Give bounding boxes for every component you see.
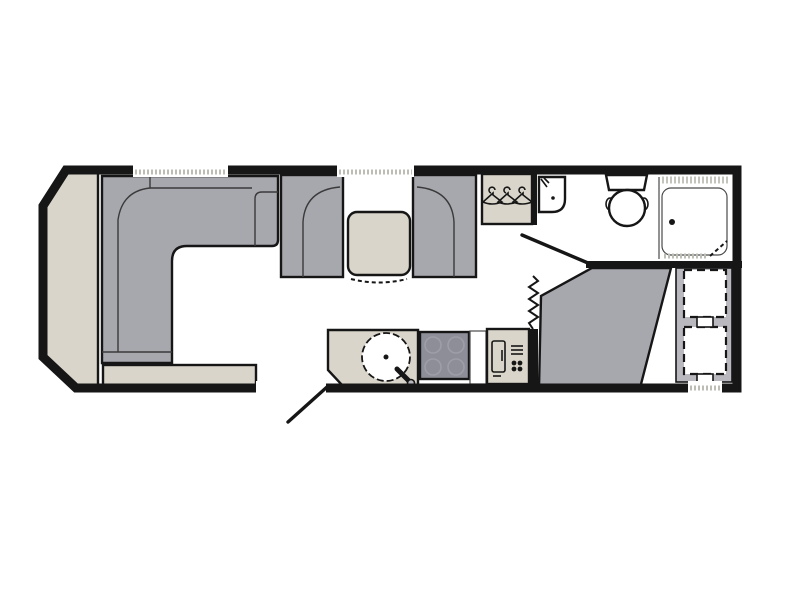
sink-drain [384, 355, 389, 360]
basin-drain [551, 196, 555, 200]
wardrobe [482, 174, 532, 224]
wardrobe-body [482, 174, 532, 224]
floorplan-canvas [0, 0, 800, 600]
bunk-lower [684, 327, 726, 374]
kitchen [328, 329, 538, 387]
dinette-seat-right [413, 175, 476, 277]
kitchen-end-wall [529, 329, 538, 386]
dinette-seat-left [281, 175, 343, 277]
bunk-step [697, 317, 713, 327]
toilet-cistern [606, 175, 647, 190]
shower-drain [669, 219, 675, 225]
toilet-bowl [609, 190, 645, 226]
dinette-table [348, 212, 410, 275]
partition-wall [531, 172, 537, 225]
bunk-step [697, 374, 713, 382]
window-bedroom [688, 381, 722, 396]
front-chest [45, 172, 98, 387]
bunk-area [676, 268, 732, 382]
entrance-doorway [256, 381, 326, 396]
caravan-floorplan [0, 0, 800, 600]
bunk-upper [684, 270, 726, 317]
